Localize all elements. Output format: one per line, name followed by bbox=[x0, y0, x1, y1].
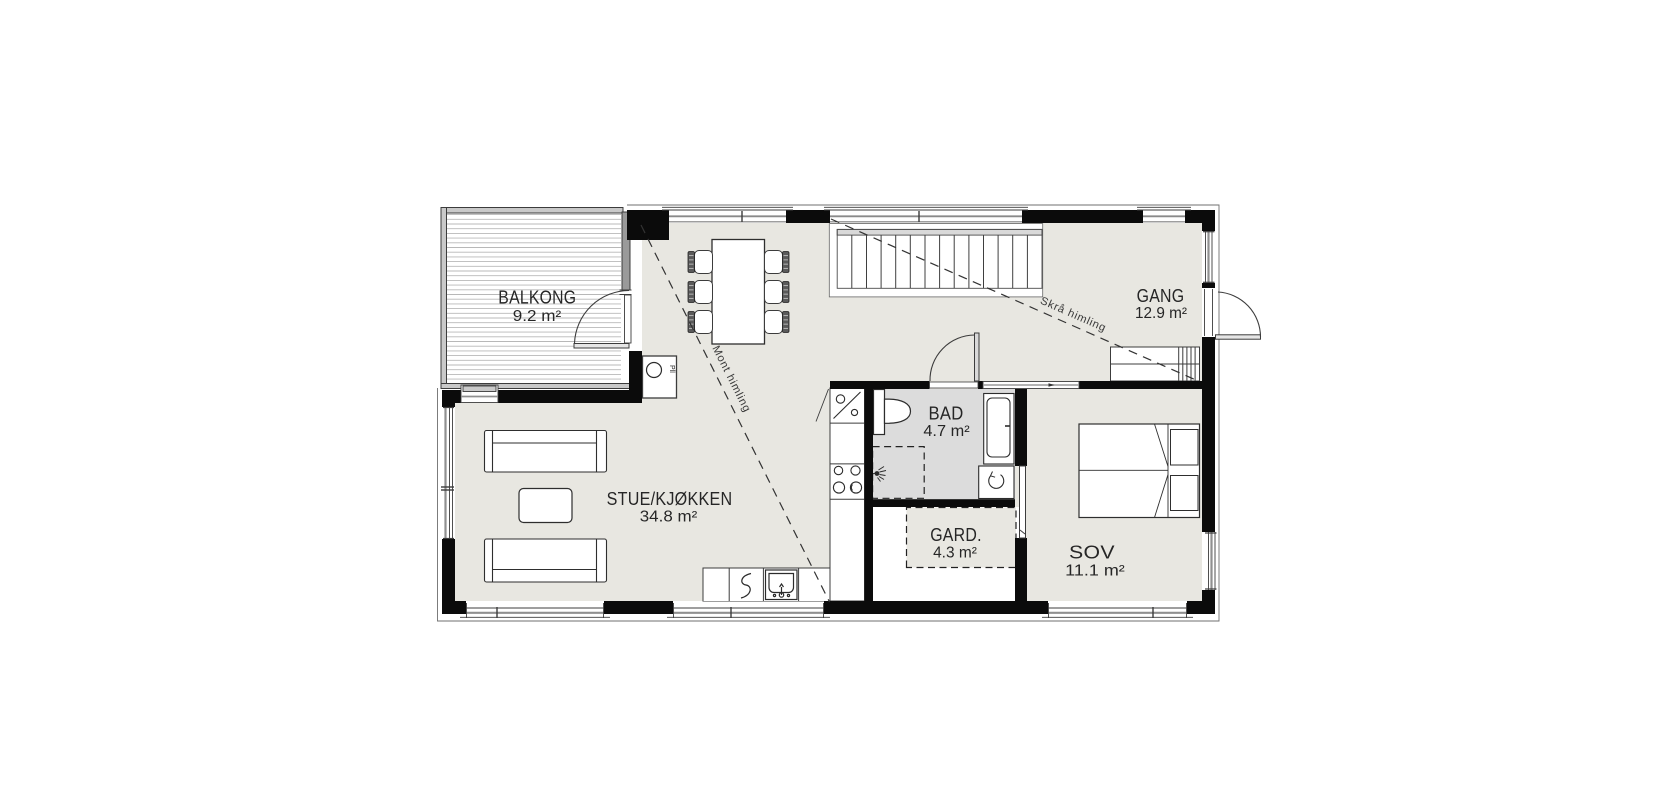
svg-text:STUE/KJØKKEN: STUE/KJØKKEN bbox=[607, 488, 733, 509]
svg-text:BAD: BAD bbox=[929, 403, 964, 424]
svg-text:34.8 m²: 34.8 m² bbox=[640, 509, 698, 526]
svg-text:9.2 m²: 9.2 m² bbox=[513, 308, 562, 325]
svg-text:GARD.: GARD. bbox=[930, 524, 982, 545]
svg-text:GANG: GANG bbox=[1137, 285, 1185, 306]
svg-text:SOV: SOV bbox=[1069, 542, 1115, 563]
svg-text:BALKONG: BALKONG bbox=[498, 287, 576, 308]
svg-text:4.7 m²: 4.7 m² bbox=[923, 423, 969, 440]
svg-text:Pll: Pll bbox=[668, 365, 675, 373]
svg-text:4.3 m²: 4.3 m² bbox=[933, 545, 977, 562]
svg-text:11.1 m²: 11.1 m² bbox=[1065, 563, 1125, 580]
svg-text:12.9 m²: 12.9 m² bbox=[1135, 305, 1187, 322]
